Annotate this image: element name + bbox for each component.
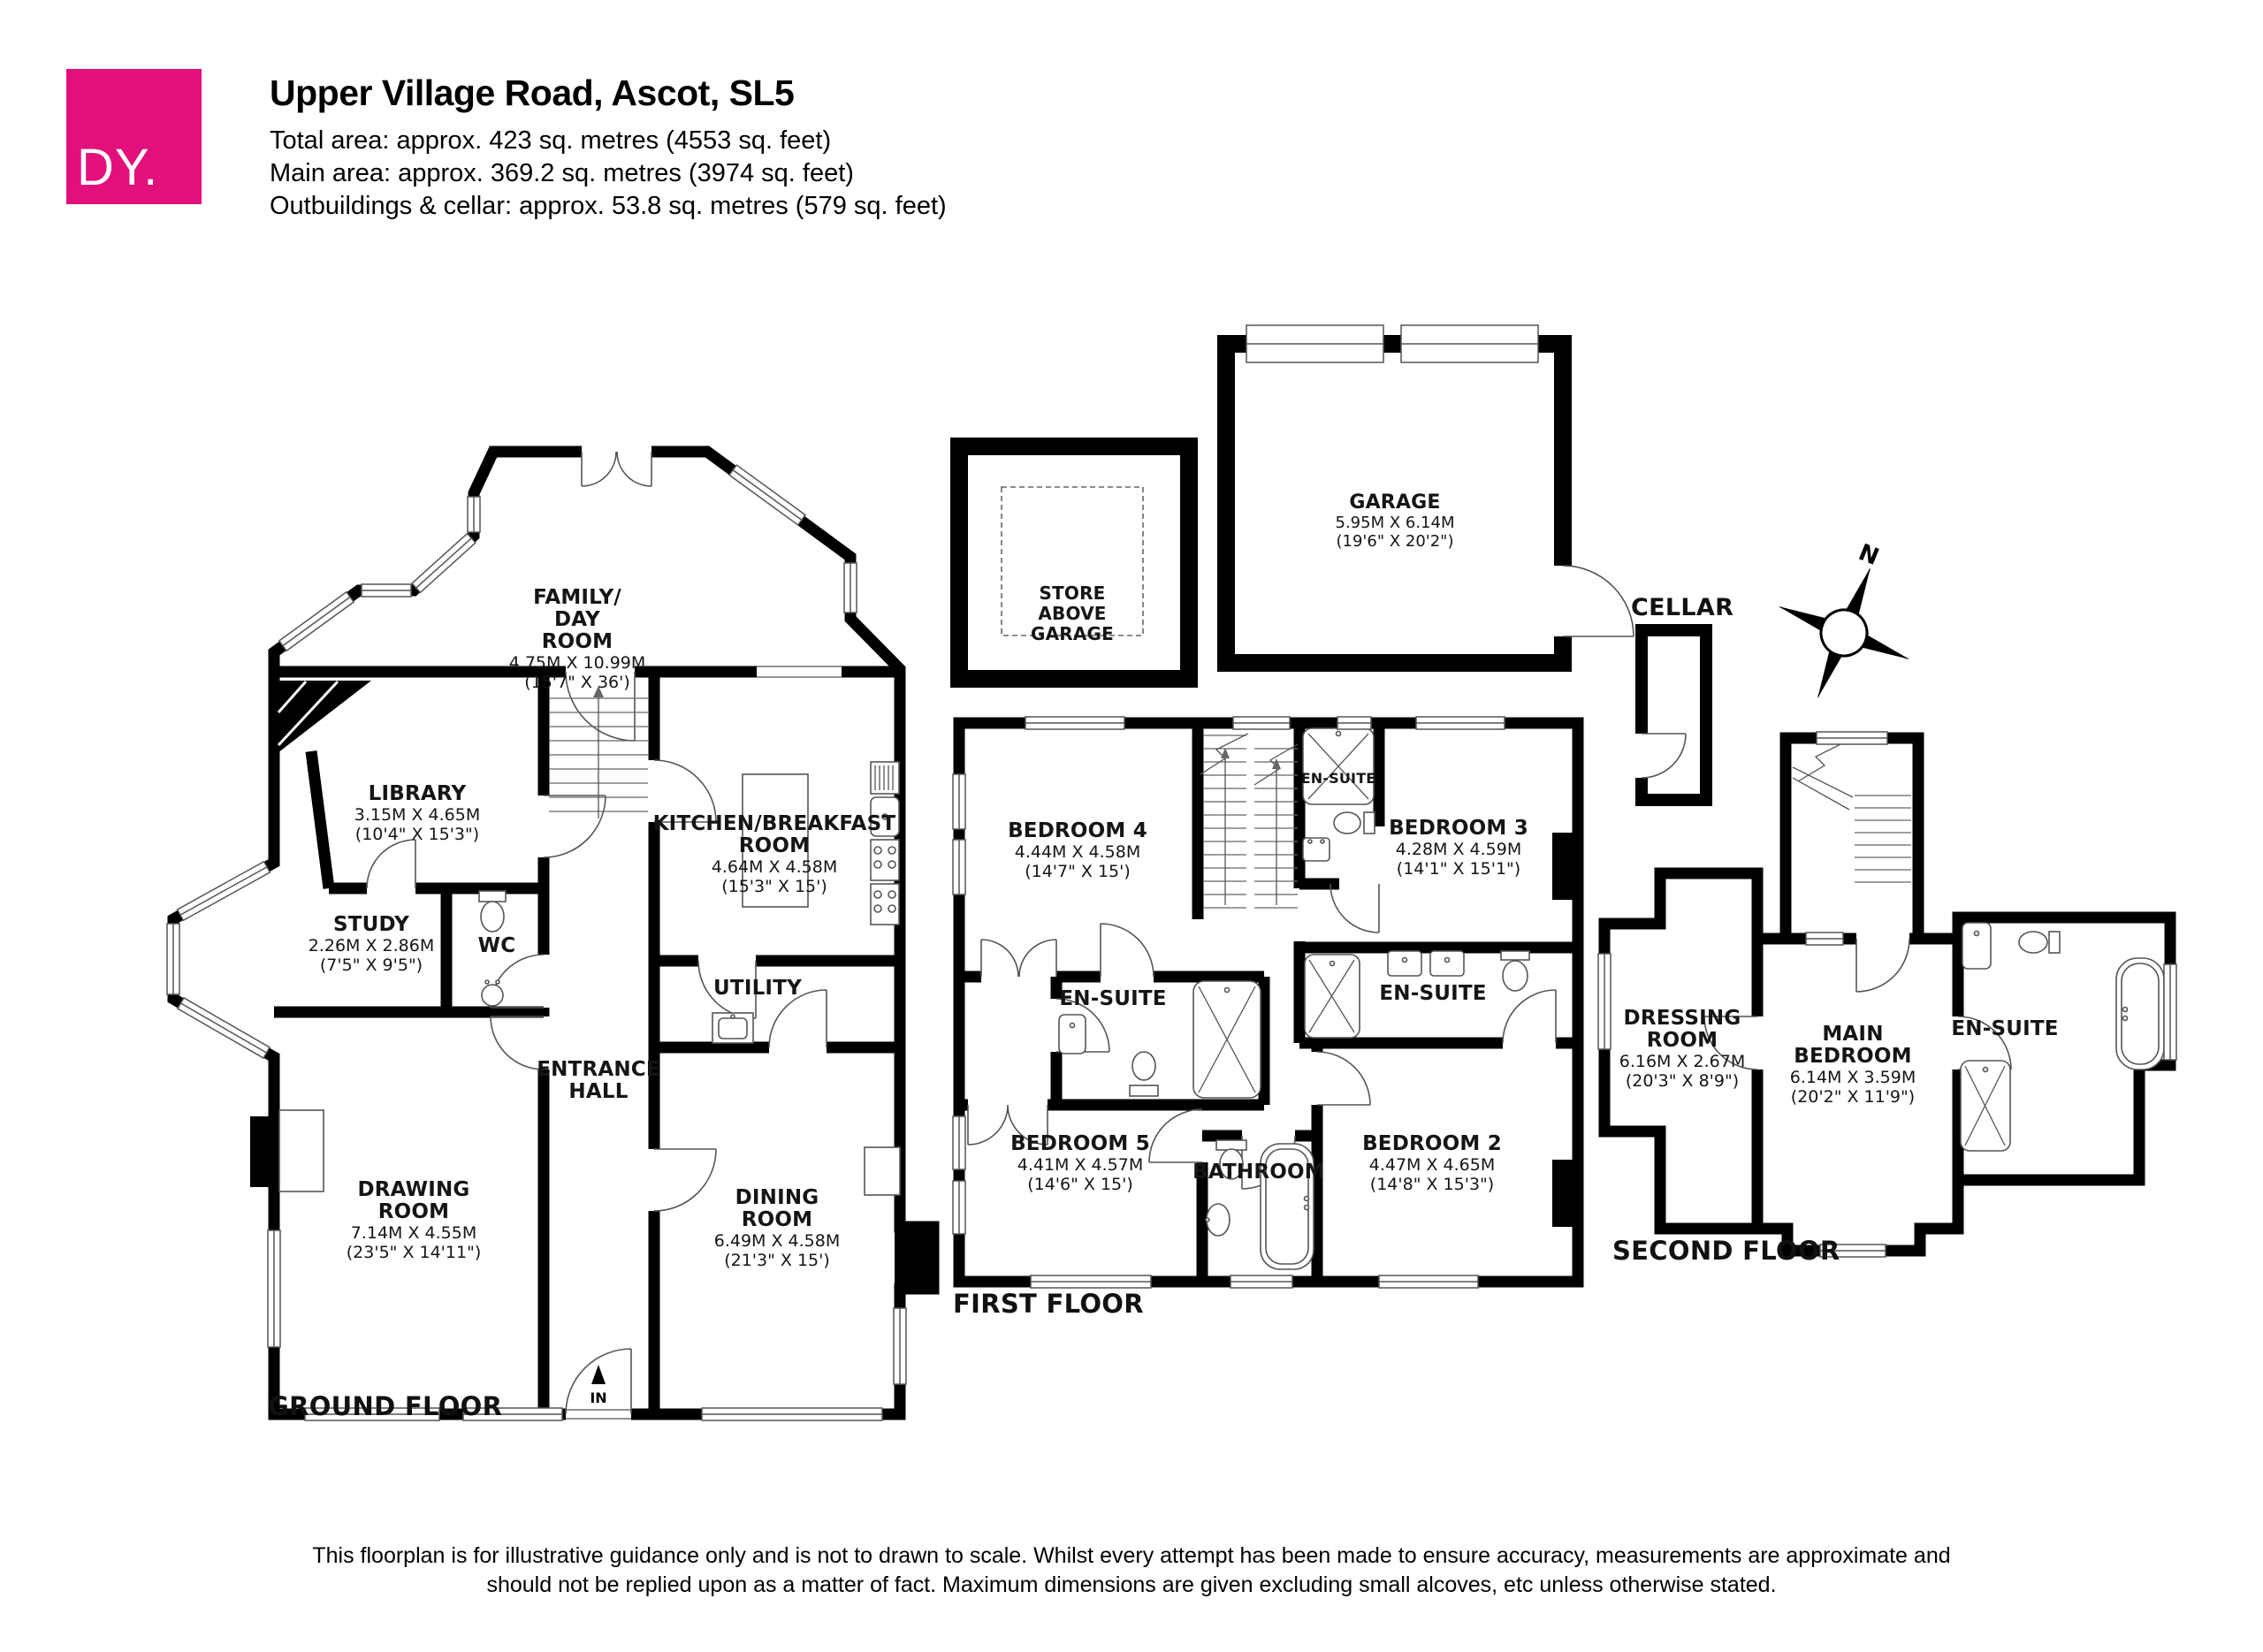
cellar-plan bbox=[1642, 630, 1706, 800]
dining-chimney bbox=[895, 1222, 937, 1294]
room-label-bedroom3: BEDROOM 3 4.28M X 4.59M (14'1" X 15'1") bbox=[1389, 818, 1528, 879]
ground-floor-label: GROUND FLOOR bbox=[268, 1391, 502, 1421]
room-label-dressing: DRESSING ROOM 6.16M X 2.67M (20'3" X 8'9… bbox=[1619, 1008, 1746, 1091]
room-label-wc: WC bbox=[478, 935, 516, 957]
drawing-fireplace bbox=[279, 1110, 324, 1191]
room-label-ensuite-top: EN-SUITE bbox=[1301, 771, 1376, 787]
bedroom3-chimney bbox=[1552, 833, 1578, 900]
room-label-bedroom5: BEDROOM 5 4.41M X 4.57M (14'6" X 15') bbox=[1010, 1133, 1150, 1194]
room-label-kitchen: KITCHEN/BREAKFAST ROOM 4.64M X 4.58M (15… bbox=[653, 813, 896, 896]
cellar-label: CELLAR bbox=[1631, 594, 1733, 621]
first-floor-label: FIRST FLOOR bbox=[953, 1289, 1144, 1319]
room-label-drawing-room: DRAWING ROOM 7.14M X 4.55M (23'5" X 14'1… bbox=[347, 1179, 481, 1262]
second-stair-tower bbox=[1786, 738, 1918, 939]
room-label-store: STORE ABOVE GARAGE bbox=[1031, 583, 1114, 644]
second-floor-plan bbox=[1598, 732, 2176, 1257]
room-label-bedroom4: BEDROOM 4 4.44M X 4.58M (14'7" X 15') bbox=[1008, 820, 1147, 881]
room-label-main-bedroom: MAIN BEDROOM 6.14M X 3.59M (20'2" X 11'9… bbox=[1790, 1024, 1916, 1107]
room-label-garage: GARAGE 5.95M X 6.14M (19'6" X 20'2") bbox=[1336, 491, 1455, 551]
room-label-entrance-hall: ENTRANCE HALL bbox=[537, 1059, 660, 1103]
entrance-in-label: IN bbox=[590, 1389, 606, 1406]
room-label-study: STUDY 2.26M X 2.86M (7'5" X 9'5") bbox=[309, 914, 435, 975]
bedroom2-chimney bbox=[1552, 1160, 1578, 1227]
room-label-ensuite-left: EN-SUITE bbox=[1059, 988, 1166, 1010]
compass-north-label: N bbox=[1855, 539, 1882, 571]
room-label-bedroom2: BEDROOM 2 4.47M X 4.65M (14'8" X 15'3") bbox=[1362, 1133, 1502, 1194]
floorplan-page: DY. Upper Village Road, Ascot, SL5 Total… bbox=[0, 0, 2263, 1652]
room-label-family-day: FAMILY/ DAY ROOM 4.75M X 10.99M (15'7" X… bbox=[509, 587, 646, 692]
room-label-bathroom: BATHROOM bbox=[1192, 1161, 1325, 1184]
compass-icon: N bbox=[1752, 519, 1945, 725]
room-label-utility: UTILITY bbox=[713, 978, 802, 1000]
drawing-chimney bbox=[250, 1116, 275, 1187]
disclaimer-text: This floorplan is for illustrative guida… bbox=[292, 1542, 1971, 1600]
dining-fireplace bbox=[865, 1147, 900, 1195]
room-label-dining-room: DINING ROOM 6.49M X 4.58M (21'3" X 15') bbox=[714, 1187, 841, 1270]
utility-sink bbox=[712, 1013, 753, 1043]
room-label-ensuite-main: EN-SUITE bbox=[1951, 1018, 2058, 1040]
room-label-ensuite-right: EN-SUITE bbox=[1379, 983, 1486, 1005]
second-floor-label: SECOND FLOOR bbox=[1612, 1236, 1840, 1266]
room-label-library: LIBRARY 3.15M X 4.65M (10'4" X 15'3") bbox=[354, 783, 481, 844]
